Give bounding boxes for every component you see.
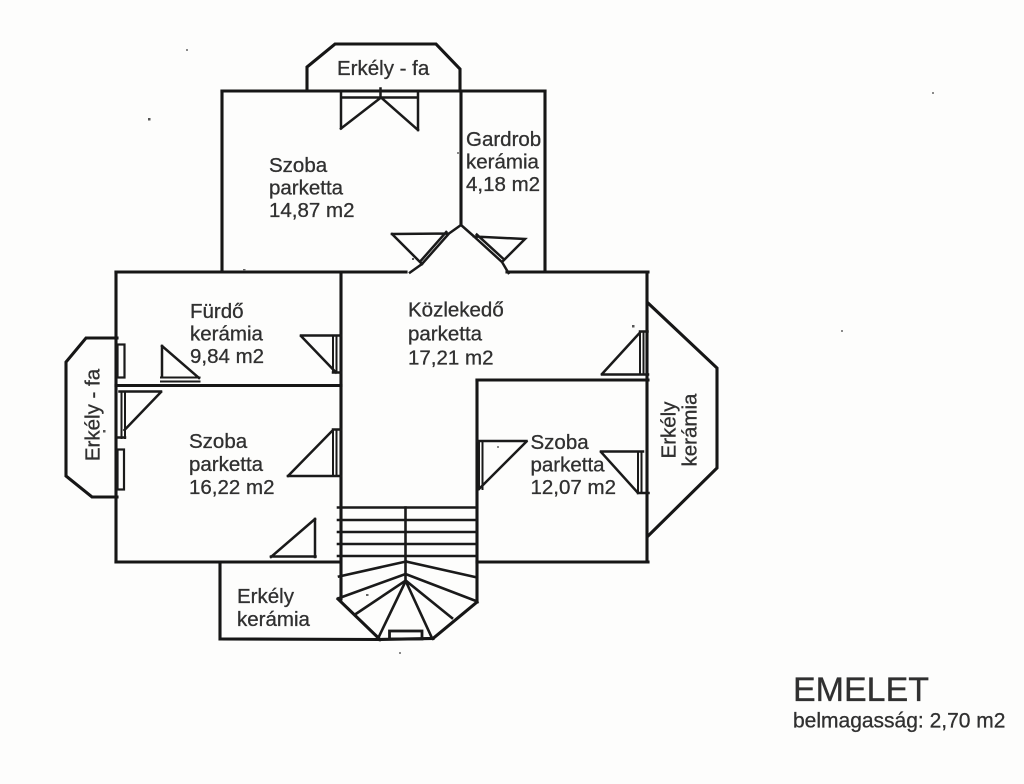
svg-text:kerámia: kerámia [678, 393, 701, 467]
svg-text:parketta: parketta [269, 177, 344, 200]
svg-text:Szoba: Szoba [269, 154, 328, 177]
svg-text:kerámia: kerámia [190, 323, 264, 346]
svg-text:Fürdő: Fürdő [190, 300, 244, 323]
svg-text:Erkély - fa: Erkély - fa [337, 57, 430, 80]
svg-text:16,22 m2: 16,22 m2 [189, 476, 274, 499]
svg-text:Erkély - fa: Erkély - fa [81, 368, 104, 461]
svg-text:17,21 m2: 17,21 m2 [408, 347, 493, 370]
svg-text:Szoba: Szoba [531, 431, 590, 454]
svg-text:kerámia: kerámia [466, 151, 540, 174]
svg-text:parketta: parketta [531, 454, 606, 477]
svg-text:Közlekedő: Közlekedő [408, 299, 504, 322]
svg-text:EMELET: EMELET [793, 671, 929, 709]
svg-text:Szoba: Szoba [189, 430, 248, 453]
svg-text:kerámia: kerámia [237, 608, 311, 631]
svg-text:parketta: parketta [189, 453, 264, 476]
svg-text:Erkély: Erkély [657, 401, 680, 459]
svg-text:belmagasság: 2,70 m2: belmagasság: 2,70 m2 [793, 710, 1005, 733]
svg-text:Erkély: Erkély [237, 585, 295, 608]
svg-text:12,07 m2: 12,07 m2 [531, 476, 616, 499]
svg-text:parketta: parketta [408, 323, 483, 346]
svg-text:Gardrob: Gardrob [466, 128, 541, 151]
svg-text:4,18 m2: 4,18 m2 [466, 173, 540, 196]
svg-text:14,87 m2: 14,87 m2 [269, 199, 354, 222]
svg-text:9,84 m2: 9,84 m2 [190, 345, 264, 368]
